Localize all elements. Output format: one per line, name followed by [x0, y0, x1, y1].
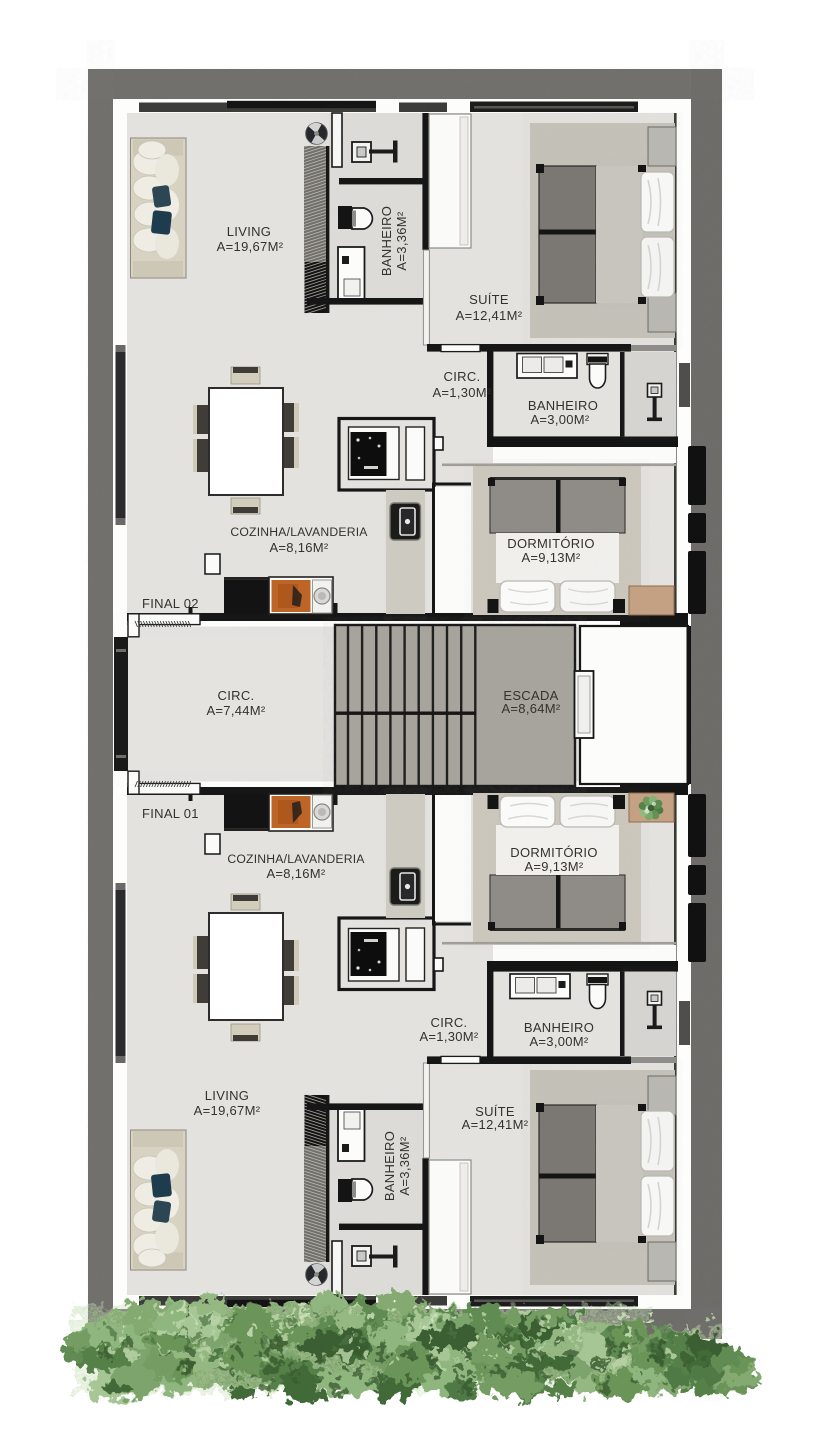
- svg-text:DORMITÓRIO: DORMITÓRIO: [510, 845, 598, 860]
- svg-text:A=7,44M²: A=7,44M²: [206, 703, 265, 718]
- svg-text:COZINHA/LAVANDERIA: COZINHA/LAVANDERIA: [227, 852, 365, 866]
- svg-text:A=8,64M²: A=8,64M²: [501, 701, 560, 716]
- svg-text:CIRC.: CIRC.: [431, 1015, 468, 1030]
- svg-text:DORMITÓRIO: DORMITÓRIO: [507, 536, 595, 551]
- svg-text:LIVING: LIVING: [205, 1088, 249, 1103]
- svg-text:FINAL 02: FINAL 02: [142, 596, 199, 611]
- svg-text:A=3,00M²: A=3,00M²: [529, 1034, 588, 1049]
- svg-text:A=9,13M²: A=9,13M²: [521, 550, 580, 565]
- svg-text:BANHEIRO: BANHEIRO: [528, 398, 598, 413]
- svg-text:BANHEIRO: BANHEIRO: [379, 206, 394, 276]
- svg-text:A=12,41M²: A=12,41M²: [462, 1117, 529, 1132]
- svg-text:A=3,36M²: A=3,36M²: [394, 211, 409, 270]
- svg-text:A=9,13M²: A=9,13M²: [524, 859, 583, 874]
- svg-text:A=8,16M²: A=8,16M²: [269, 540, 328, 555]
- svg-text:LIVING: LIVING: [227, 224, 271, 239]
- svg-text:CIRC.: CIRC.: [444, 369, 481, 384]
- svg-text:CIRC.: CIRC.: [218, 688, 255, 703]
- svg-text:A=19,67M²: A=19,67M²: [217, 239, 284, 254]
- svg-text:FINAL 01: FINAL 01: [142, 806, 199, 821]
- svg-text:SUÍTE: SUÍTE: [469, 292, 509, 307]
- svg-text:A=1,30M²: A=1,30M²: [432, 385, 491, 400]
- svg-text:BANHEIRO: BANHEIRO: [382, 1131, 397, 1201]
- svg-text:A=1,30M²: A=1,30M²: [419, 1029, 478, 1044]
- svg-text:BANHEIRO: BANHEIRO: [524, 1020, 594, 1035]
- svg-text:A=3,36M²: A=3,36M²: [397, 1136, 412, 1195]
- svg-text:COZINHA/LAVANDERIA: COZINHA/LAVANDERIA: [230, 525, 368, 539]
- svg-text:A=12,41M²: A=12,41M²: [456, 308, 523, 323]
- svg-text:A=19,67M²: A=19,67M²: [194, 1103, 261, 1118]
- svg-text:A=3,00M²: A=3,00M²: [530, 412, 589, 427]
- svg-text:A=8,16M²: A=8,16M²: [266, 866, 325, 881]
